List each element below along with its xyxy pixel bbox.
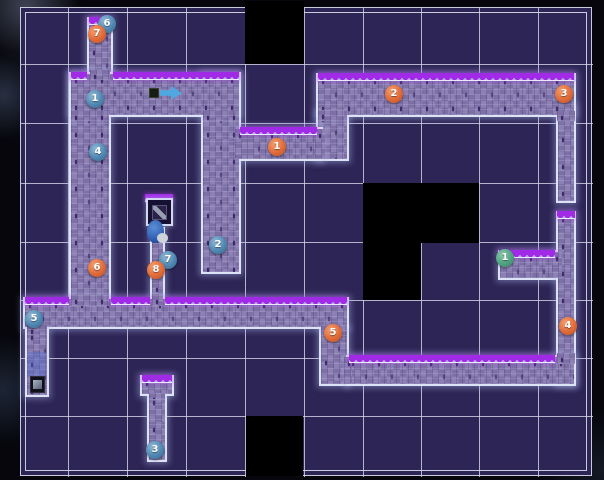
corridor-junction: [90, 70, 110, 80]
marker-green-1[interactable]: 1: [496, 249, 514, 267]
corridor-junction: [318, 110, 347, 121]
blue-passage-overlay: [28, 352, 46, 376]
fringe-spikes: [142, 375, 172, 383]
void-cell: [363, 183, 479, 243]
fringe-spikes: [557, 211, 575, 219]
marker-orange-4[interactable]: 4: [559, 317, 577, 335]
marker-orange-5[interactable]: 5: [324, 324, 342, 342]
fringe-spikes: [111, 297, 150, 305]
map-frame: 6714267812314553: [20, 7, 592, 476]
marker-orange-1[interactable]: 1: [268, 138, 286, 156]
grid-line-horizontal: [21, 416, 593, 417]
map-screen: 6714267812314553: [0, 0, 604, 480]
corridor-junction: [557, 353, 575, 364]
corridor-junction: [152, 295, 163, 306]
marker-orange-8[interactable]: 8: [147, 261, 165, 279]
fringe-spikes: [165, 297, 347, 305]
marker-blue-4[interactable]: 4: [89, 143, 107, 161]
marker-blue-3[interactable]: 3: [146, 441, 164, 459]
marker-blue-5[interactable]: 5: [25, 310, 43, 328]
fringe-spikes: [349, 355, 555, 363]
corridor-junction: [71, 295, 109, 306]
fringe-spikes: [318, 73, 574, 81]
marker-blue-2[interactable]: 2: [209, 236, 227, 254]
monitor-icon: [30, 376, 45, 393]
void-cell: [246, 416, 303, 476]
corridor-junction: [203, 111, 239, 121]
marker-blue-1[interactable]: 1: [86, 90, 104, 108]
player-sprite: [147, 220, 170, 248]
marker-orange-7[interactable]: 7: [88, 25, 106, 43]
corridor-junction: [149, 393, 165, 399]
fringe-spikes: [240, 127, 317, 135]
corridor-junction: [557, 111, 575, 121]
marker-orange-2[interactable]: 2: [385, 85, 403, 103]
void-cell: [363, 243, 421, 300]
void-cell: [245, 1, 304, 64]
fringe-spikes: [71, 72, 87, 80]
fringe-spikes: [113, 72, 239, 80]
marker-orange-6[interactable]: 6: [88, 259, 106, 277]
corridor-junction: [71, 111, 109, 121]
marker-orange-3[interactable]: 3: [555, 85, 573, 103]
item-box-icon: [149, 88, 159, 98]
fringe-spikes: [25, 297, 69, 305]
